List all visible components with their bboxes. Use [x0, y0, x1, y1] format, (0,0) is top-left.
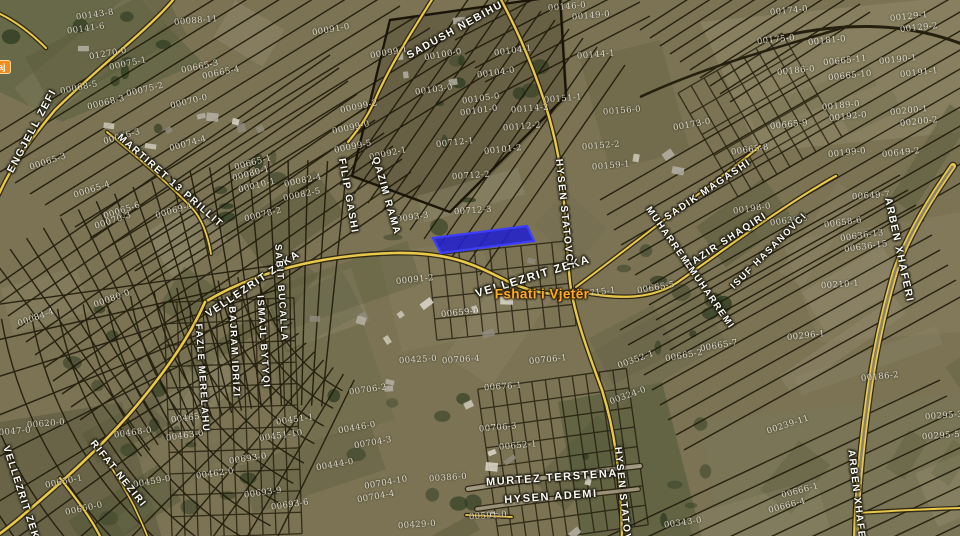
edge-place-label: aj: [0, 60, 11, 74]
map-canvas[interactable]: 00143-800141-600088-1101270-000075-10066…: [0, 0, 960, 536]
satellite-imagery: [0, 0, 960, 536]
